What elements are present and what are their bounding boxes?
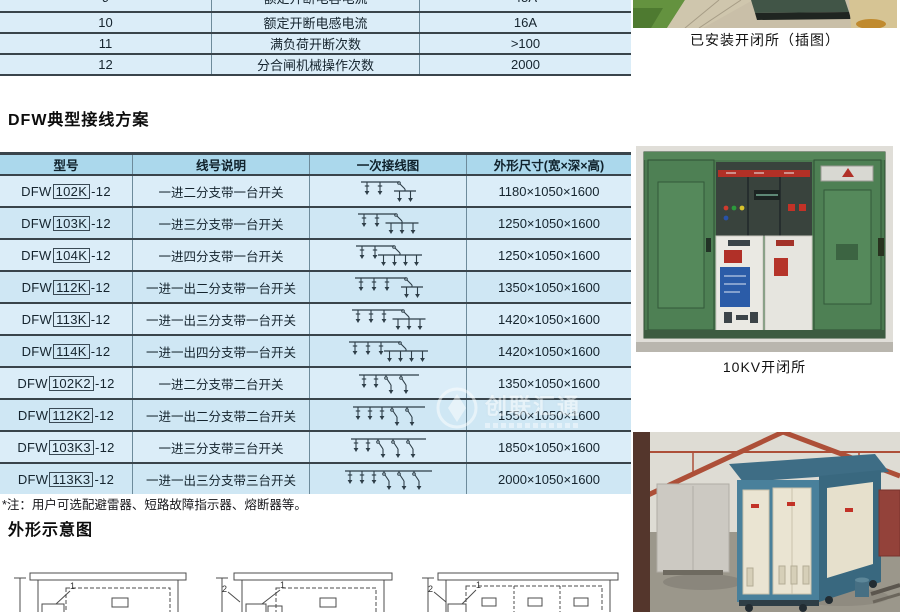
column-header: 型号	[0, 155, 133, 174]
description-cell: 一进二分支带二台开关	[133, 368, 310, 398]
left-door	[648, 160, 714, 330]
spec-value: 16A	[420, 13, 631, 32]
size-cell: 2000×1050×1600	[467, 464, 631, 494]
model-cell: DFW112K2 -12	[0, 400, 133, 430]
spec-value: 45A	[420, 0, 631, 11]
footnote: *注：用户可选配避雷器、短路故障指示器、熔断器等。	[2, 494, 307, 513]
drawing-label: 1	[70, 581, 75, 591]
wiring-diagram-cell	[310, 368, 467, 398]
photo-box-substation	[633, 432, 900, 612]
drawing-label: 1	[476, 580, 481, 590]
table-row: DFW103K3 -12一进三分支带三台开关1850×1050×1600	[0, 432, 631, 464]
description-cell: 一进一出四分支带一台开关	[133, 336, 310, 366]
cabinet-corner	[751, 0, 849, 13]
wiring-table-body: DFW102K-12一进二分支带一台开关1180×1050×1600DFW103…	[0, 176, 631, 494]
wiring-diagram	[311, 432, 466, 462]
table-row: DFW104K-12一进四分支带一台开关1250×1050×1600	[0, 240, 631, 272]
spec-name: 满负荷开断次数	[212, 34, 420, 53]
drawing-label: 2	[428, 584, 433, 594]
spec-name: 额定开断电容电流	[212, 0, 420, 11]
spec-row: 10额定开断电感电流16A	[0, 13, 631, 34]
spec-number: 9	[0, 0, 212, 11]
spec-number: 10	[0, 13, 212, 32]
panel-right	[765, 236, 812, 332]
wiring-diagram	[311, 176, 466, 206]
size-cell: 1850×1050×1600	[467, 432, 631, 462]
wiring-diagram-cell	[310, 240, 467, 270]
wiring-diagram-cell	[310, 336, 467, 366]
spec-number: 12	[0, 55, 212, 74]
photo-caption: 10KV开闭所	[636, 357, 893, 377]
model-cell: DFW113K3 -12	[0, 464, 133, 494]
spec-name: 额定开断电感电流	[212, 13, 420, 32]
spec-value: 2000	[420, 55, 631, 74]
wiring-diagram-cell	[310, 304, 467, 334]
cabinet-base	[644, 330, 885, 338]
model-cell: DFW102K-12	[0, 176, 133, 206]
size-cell: 1350×1050×1600	[467, 272, 631, 302]
wiring-diagram	[311, 208, 466, 238]
model-cell: DFW103K-12	[0, 208, 133, 238]
white-cabinet	[657, 484, 729, 575]
wiring-diagram-cell	[310, 272, 467, 302]
wiring-diagram	[311, 368, 466, 398]
wiring-table-header: 型号线号说明一次接线图外形尺寸(宽×深×高)	[0, 155, 631, 176]
size-cell: 1550×1050×1600	[467, 400, 631, 430]
ground	[636, 342, 893, 352]
table-row: DFW102K2 -12一进二分支带二台开关1350×1050×1600	[0, 368, 631, 400]
section-title-wiring: DFW典型接线方案	[8, 106, 149, 130]
size-cell: 1250×1050×1600	[467, 240, 631, 270]
outline-drawing-3: 1 2	[418, 548, 630, 612]
wiring-diagram-cell	[310, 464, 467, 494]
description-cell: 一进二分支带一台开关	[133, 176, 310, 206]
model-cell: DFW114K-12	[0, 336, 133, 366]
wiring-diagram-cell	[310, 176, 467, 206]
size-cell: 1350×1050×1600	[467, 368, 631, 398]
blue-label	[720, 267, 750, 307]
outline-drawing-2: 1 2	[210, 548, 406, 612]
side-panel	[827, 482, 873, 578]
size-cell: 1420×1050×1600	[467, 304, 631, 334]
catalog-page: 9额定开断电容电流45A10额定开断电感电流16A11满负荷开断次数>10012…	[0, 0, 900, 612]
spec-row: 11满负荷开断次数>100	[0, 34, 631, 55]
wiring-diagram-cell	[310, 208, 467, 238]
spec-row: 12分合闸机械操作次数2000	[0, 55, 631, 76]
wiring-diagram	[311, 464, 466, 494]
photo-installed-switchgear	[633, 0, 897, 28]
section-title-outline: 外形示意图	[8, 516, 93, 540]
description-cell: 一进一出三分支带一台开关	[133, 304, 310, 334]
table-row: DFW113K3 -12一进一出三分支带三台开关2000×1050×1600	[0, 464, 631, 494]
table-row: DFW114K-12一进一出四分支带一台开关1420×1050×1600	[0, 336, 631, 368]
table-row: DFW102K-12一进二分支带一台开关1180×1050×1600	[0, 176, 631, 208]
outline-drawings: 1 1 2	[0, 548, 632, 612]
description-cell: 一进四分支带一台开关	[133, 240, 310, 270]
photo-10kv-station	[636, 146, 893, 352]
wiring-diagram	[311, 240, 466, 270]
red-door	[879, 490, 900, 556]
description-cell: 一进一出三分支带三台开关	[133, 464, 310, 494]
cabinet-top-edge	[644, 152, 885, 160]
model-cell: DFW104K-12	[0, 240, 133, 270]
wiring-table: 型号线号说明一次接线图外形尺寸(宽×深×高) DFW102K-12一进二分支带一…	[0, 152, 631, 490]
right-door	[814, 160, 884, 330]
model-cell: DFW112K-12	[0, 272, 133, 302]
photo-caption: 已安装开闭所（插图）	[633, 30, 897, 50]
spec-name: 分合闸机械操作次数	[212, 55, 420, 74]
wiring-diagram-cell	[310, 432, 467, 462]
model-cell: DFW103K3 -12	[0, 432, 133, 462]
drawing-label: 2	[222, 584, 227, 594]
size-cell: 1420×1050×1600	[467, 336, 631, 366]
size-cell: 1250×1050×1600	[467, 208, 631, 238]
wiring-diagram	[311, 400, 466, 430]
model-cell: DFW102K2 -12	[0, 368, 133, 398]
spec-table: 9额定开断电容电流45A10额定开断电感电流16A11满负荷开断次数>10012…	[0, 0, 631, 76]
wood-pole	[633, 432, 650, 612]
spec-value: >100	[420, 34, 631, 53]
spec-number: 11	[0, 34, 212, 53]
model-cell: DFW113K-12	[0, 304, 133, 334]
description-cell: 一进三分支带三台开关	[133, 432, 310, 462]
column-header: 线号说明	[133, 155, 310, 174]
description-cell: 一进一出二分支带一台开关	[133, 272, 310, 302]
column-header: 外形尺寸(宽×深×高)	[467, 155, 631, 174]
wiring-diagram	[311, 304, 466, 334]
wiring-diagram-cell	[310, 400, 467, 430]
table-row: DFW103K-12一进三分支带一台开关1250×1050×1600	[0, 208, 631, 240]
description-cell: 一进三分支带一台开关	[133, 208, 310, 238]
wiring-diagram	[311, 336, 466, 366]
size-cell: 1180×1050×1600	[467, 176, 631, 206]
wiring-diagram	[311, 272, 466, 302]
outline-drawing-1: 1	[8, 548, 200, 612]
cabinet-base	[755, 12, 851, 20]
table-row: DFW112K2 -12一进一出二分支带二台开关1550×1050×1600	[0, 400, 631, 432]
column-header: 一次接线图	[310, 155, 467, 174]
table-row: DFW112K-12一进一出二分支带一台开关1350×1050×1600	[0, 272, 631, 304]
spec-row: 9额定开断电容电流45A	[0, 0, 631, 13]
drawing-label: 1	[280, 580, 285, 590]
table-row: DFW113K-12一进一出三分支带一台开关1420×1050×1600	[0, 304, 631, 336]
description-cell: 一进一出二分支带二台开关	[133, 400, 310, 430]
